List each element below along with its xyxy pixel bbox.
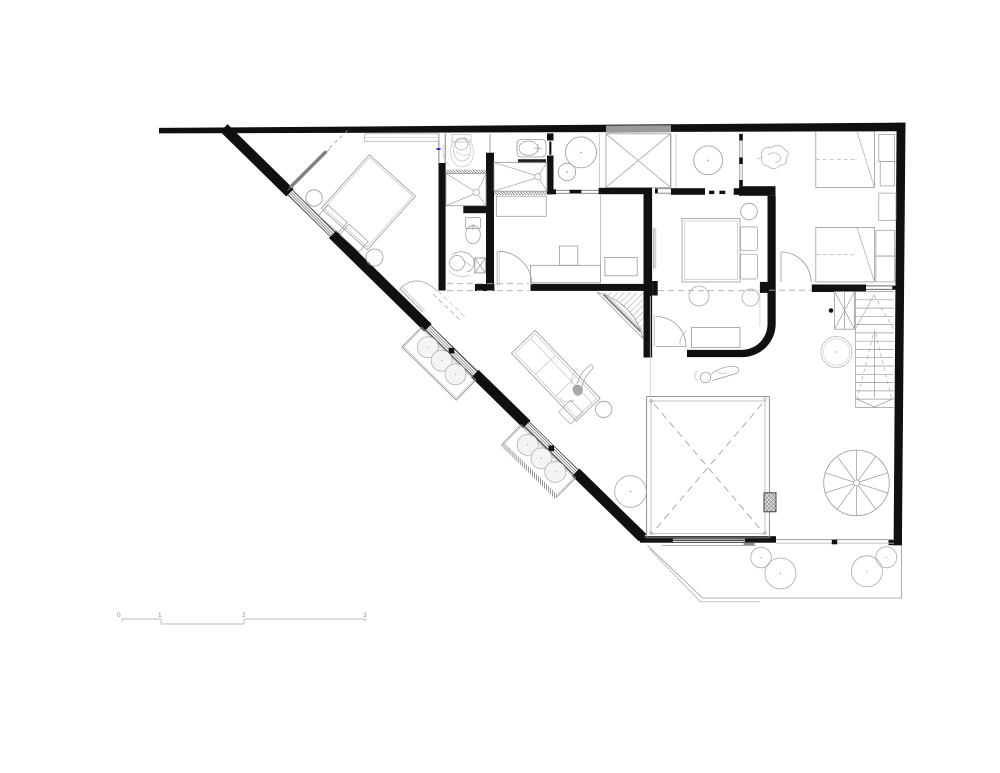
svg-text:1: 1: [158, 612, 162, 619]
svg-text:3: 3: [363, 612, 367, 619]
svg-text:2: 2: [242, 612, 246, 619]
svg-text:0: 0: [117, 612, 121, 619]
